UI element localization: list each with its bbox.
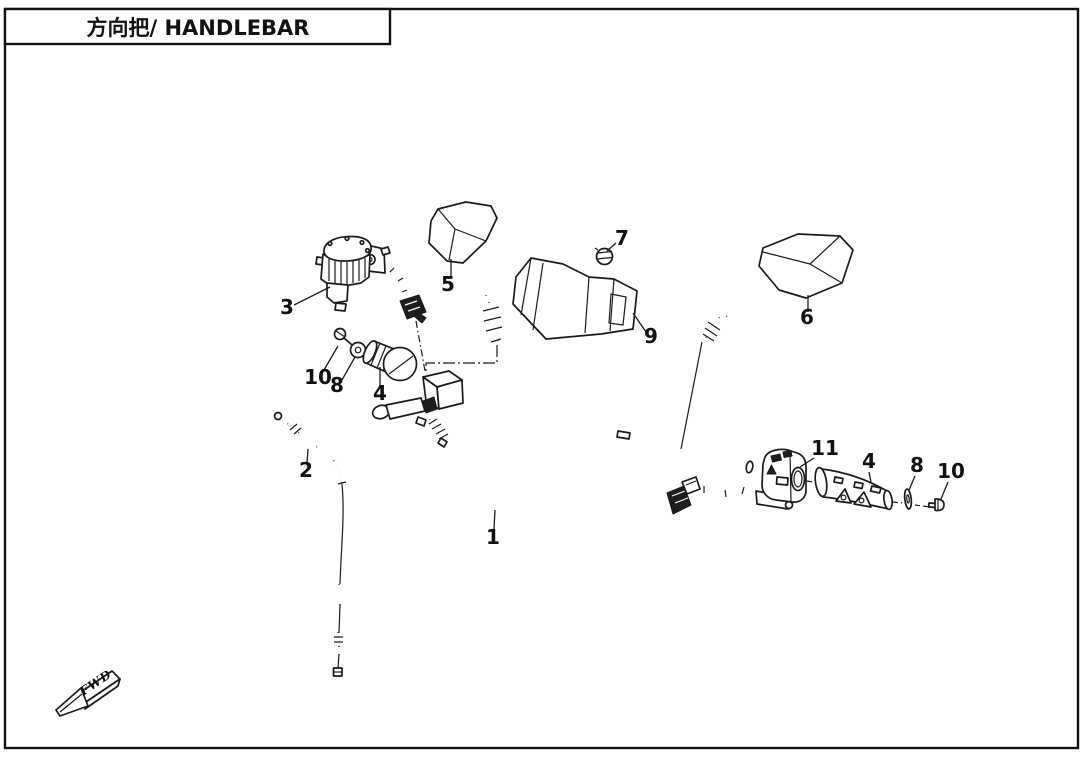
callout-11: 11 — [811, 436, 839, 460]
callout-2: 2 — [299, 458, 313, 482]
switch-button — [771, 454, 782, 462]
callout-5: 5 — [441, 272, 455, 296]
callout-9: 9 — [644, 324, 658, 348]
callout-8-left: 8 — [330, 373, 344, 397]
callout-1: 1 — [486, 525, 500, 549]
callout-3: 3 — [280, 295, 294, 319]
diagram-frame: 方向把/ HANDLEBAR — [5, 9, 1078, 748]
callout-8-right: 8 — [910, 453, 924, 477]
callout-6: 6 — [800, 305, 814, 329]
callout-4-right: 4 — [862, 449, 876, 473]
callout-4-left: 4 — [373, 381, 387, 405]
handlebar-tab — [617, 431, 630, 439]
page-title: 方向把/ HANDLEBAR — [87, 16, 310, 40]
callout-7: 7 — [615, 226, 629, 250]
callout-10-left: 10 — [304, 365, 332, 389]
parts-diagram-page: 方向把/ HANDLEBAR — [0, 0, 1090, 760]
handlebar-exploded-diagram: 方向把/ HANDLEBAR — [0, 0, 1090, 760]
switch-button — [783, 451, 792, 458]
callout-10-right: 10 — [937, 459, 965, 483]
